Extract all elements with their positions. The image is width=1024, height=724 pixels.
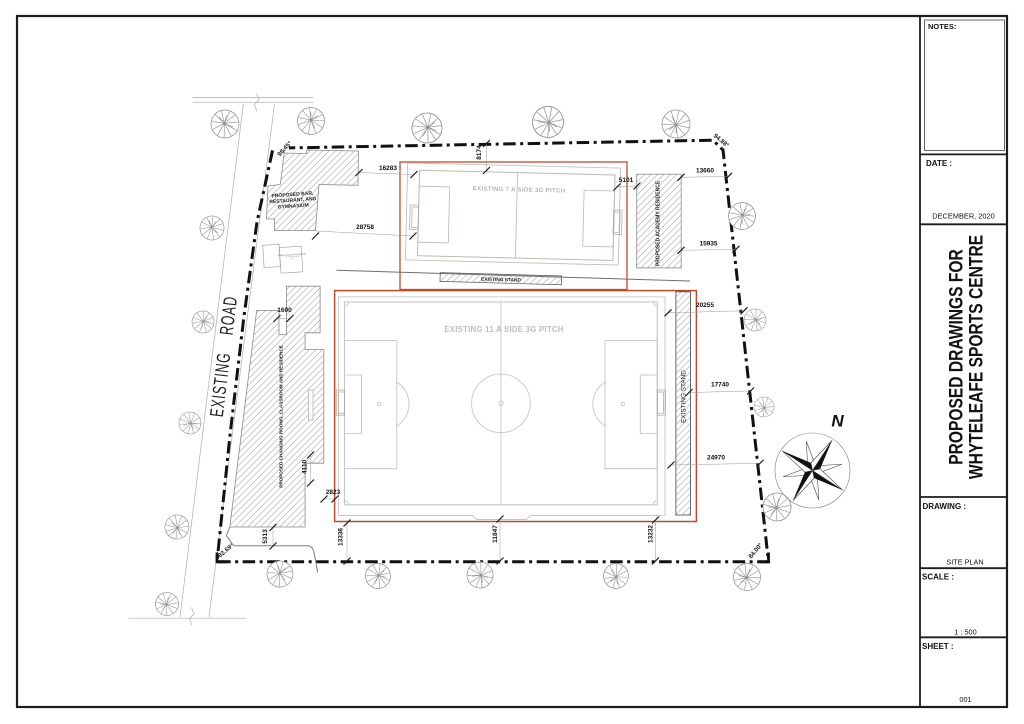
svg-text:15935: 15935 <box>699 241 717 248</box>
svg-text:13232: 13232 <box>648 525 655 543</box>
svg-text:DRAWING :: DRAWING : <box>923 502 967 511</box>
svg-text:PROPOSED ACADEMY RESIDENCE: PROPOSED ACADEMY RESIDENCE <box>656 180 662 266</box>
svg-text:SITE PLAN: SITE PLAN <box>946 558 983 567</box>
svg-text:PROPOSED CHANGING ROOMS, CLASS: PROPOSED CHANGING ROOMS, CLASSROOM AND R… <box>279 345 284 488</box>
svg-text:28758: 28758 <box>356 224 374 231</box>
svg-text:11847: 11847 <box>492 525 499 543</box>
svg-text:1 : 500: 1 : 500 <box>954 628 976 637</box>
svg-text:EXISTING STAND: EXISTING STAND <box>481 277 522 284</box>
svg-text:PROPOSED DRAWINGS FOR: PROPOSED DRAWINGS FOR <box>945 249 967 465</box>
svg-text:SCALE :: SCALE : <box>922 573 954 582</box>
svg-text:SHEET :: SHEET : <box>922 642 954 651</box>
svg-text:5313: 5313 <box>262 529 269 544</box>
svg-text:EXISTING 7 A SIDE 3G PITCH: EXISTING 7 A SIDE 3G PITCH <box>473 186 566 194</box>
svg-text:16283: 16283 <box>379 165 397 172</box>
svg-text:1600: 1600 <box>277 307 292 314</box>
svg-text:EXISTING STAND: EXISTING STAND <box>681 370 688 423</box>
svg-text:N: N <box>831 412 844 431</box>
svg-text:5101: 5101 <box>619 177 634 184</box>
svg-text:NOTES:: NOTES: <box>928 22 956 31</box>
svg-text:13660: 13660 <box>696 168 714 175</box>
svg-text:24970: 24970 <box>707 455 725 462</box>
svg-text:84.00°: 84.00° <box>747 542 764 561</box>
svg-text:13336: 13336 <box>338 528 345 546</box>
svg-text:001: 001 <box>959 695 971 704</box>
svg-text:EXISTING 11 A SIDE 3G PITCH: EXISTING 11 A SIDE 3G PITCH <box>444 325 563 334</box>
svg-text:20255: 20255 <box>696 302 714 309</box>
svg-text:DECEMBER, 2020: DECEMBER, 2020 <box>932 211 994 220</box>
svg-text:4110: 4110 <box>302 460 309 474</box>
svg-text:DATE :: DATE : <box>926 159 952 168</box>
svg-text:WHYTELEAFE SPORTS CENTRE: WHYTELEAFE SPORTS CENTRE <box>965 235 987 479</box>
svg-text:2823: 2823 <box>326 489 341 496</box>
svg-text:8174: 8174 <box>476 145 483 160</box>
svg-text:17740: 17740 <box>711 382 729 389</box>
svg-text:94.88°: 94.88° <box>712 132 731 149</box>
